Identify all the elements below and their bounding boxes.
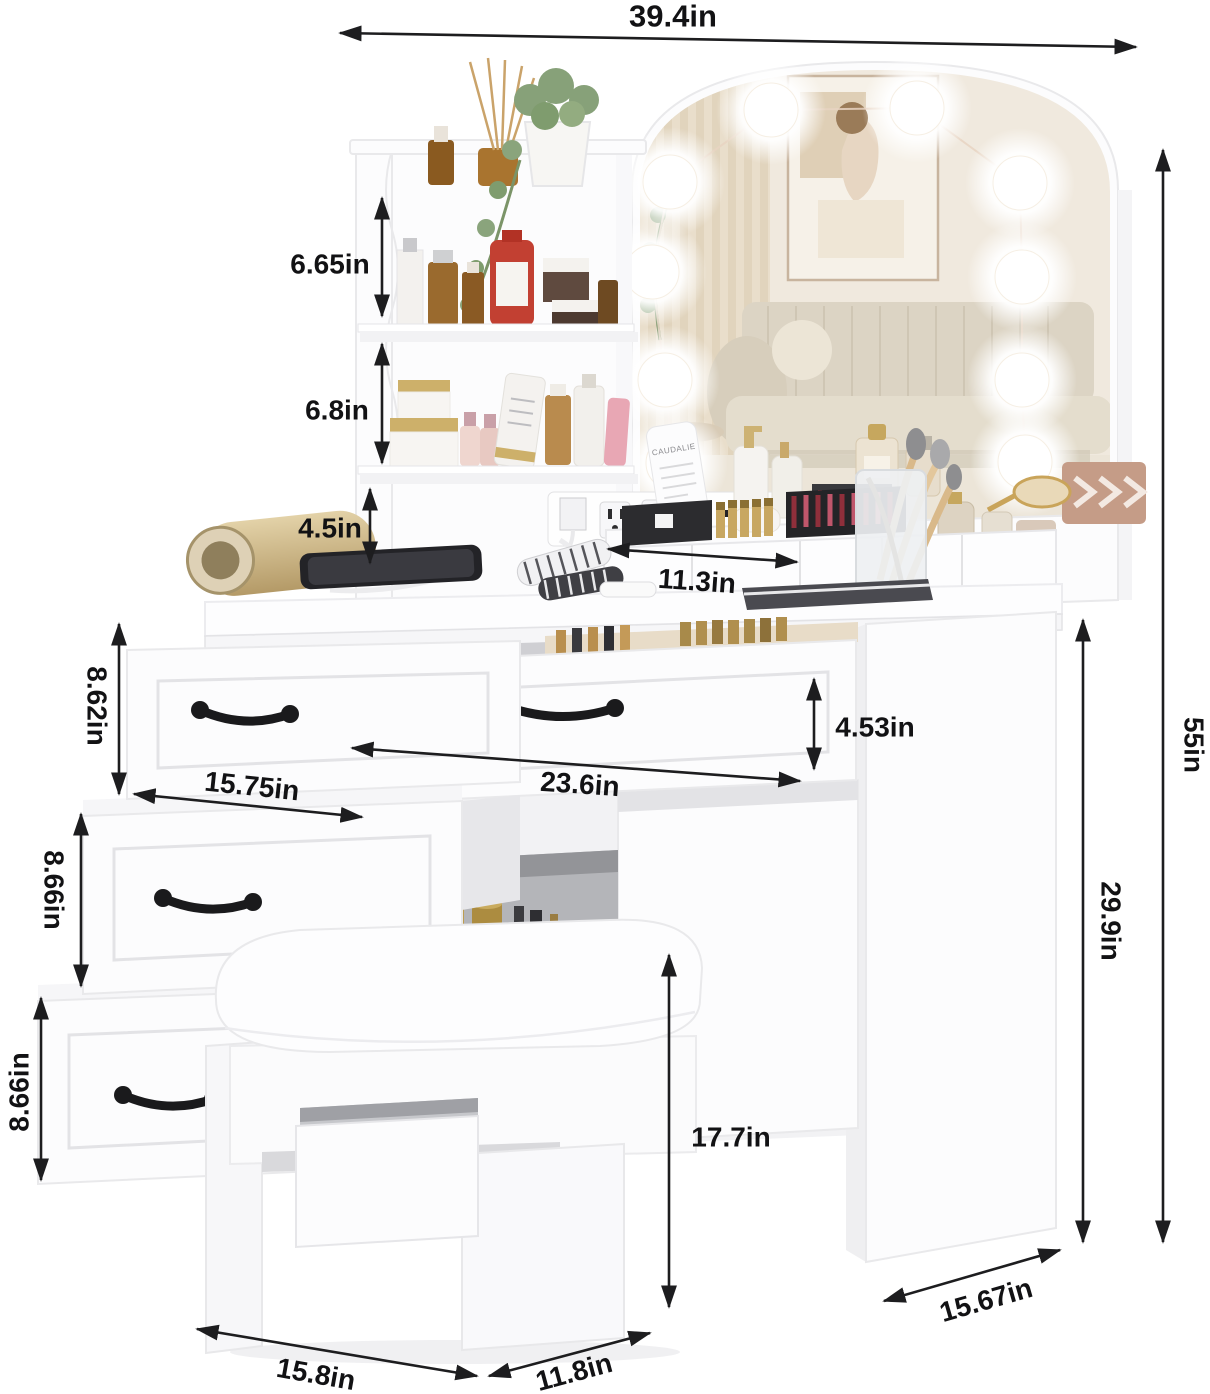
- dim-label-stool-height: 17.7in: [691, 1122, 770, 1153]
- dim-label-tabletop-height: 29.9in: [1096, 881, 1127, 960]
- product-dimension-image: CAUDALIE: [0, 0, 1210, 1394]
- dim-label-center-drawer-width: 23.6in: [539, 766, 620, 802]
- dim-label-total-height: 55in: [1179, 717, 1210, 773]
- dim-label-top-drawer-height: 8.62in: [82, 666, 113, 745]
- light-bulb: [716, 55, 826, 165]
- shelf-board: [358, 324, 634, 332]
- dim-label-organizer-width: 11.3in: [657, 563, 737, 599]
- dim-desk-depth: 15.67in: [884, 1250, 1060, 1328]
- plant-pot: [525, 122, 590, 186]
- stool-cushion[interactable]: [216, 920, 702, 1052]
- hutch-side-edge: [1118, 190, 1132, 600]
- dim-bottom-drawer-height: 8.66in: [4, 998, 42, 1180]
- light-bulb: [967, 222, 1077, 332]
- drawer-top[interactable]: [127, 641, 520, 799]
- light-bulb: [965, 128, 1075, 238]
- dim-total-height: 55in: [1163, 150, 1210, 1242]
- dim-label-upper-shelf: 6.65in: [290, 249, 369, 280]
- dim-label-middle-shelf: 6.8in: [305, 395, 369, 426]
- vanity-stool: [206, 920, 702, 1364]
- dim-label-middle-drawer-height: 8.66in: [39, 850, 70, 929]
- blush-palette: [1062, 462, 1146, 524]
- hand-mirror: [1014, 477, 1070, 507]
- dim-label-center-drawer-height: 4.53in: [835, 712, 914, 743]
- dim-label-total-width: 39.4in: [629, 0, 717, 34]
- desk-side-panel: [846, 612, 1056, 1262]
- light-bulb: [862, 53, 972, 163]
- dim-top-drawer-height: 8.62in: [82, 624, 120, 794]
- dim-tabletop-height: 29.9in: [1083, 620, 1127, 1242]
- cosmetics-shelf-items: [390, 373, 630, 470]
- plug: [560, 498, 586, 530]
- stool-right-leg: [462, 1144, 624, 1350]
- dim-label-bottom-drawer-height: 8.66in: [4, 1052, 35, 1131]
- dim-label-lower-shelf: 4.5in: [298, 513, 362, 544]
- stool-storage-drawer[interactable]: [296, 1098, 478, 1247]
- dim-total-width: 39.4in: [340, 0, 1136, 47]
- shelf-board: [358, 466, 634, 474]
- dim-middle-drawer-height: 8.66in: [39, 814, 82, 986]
